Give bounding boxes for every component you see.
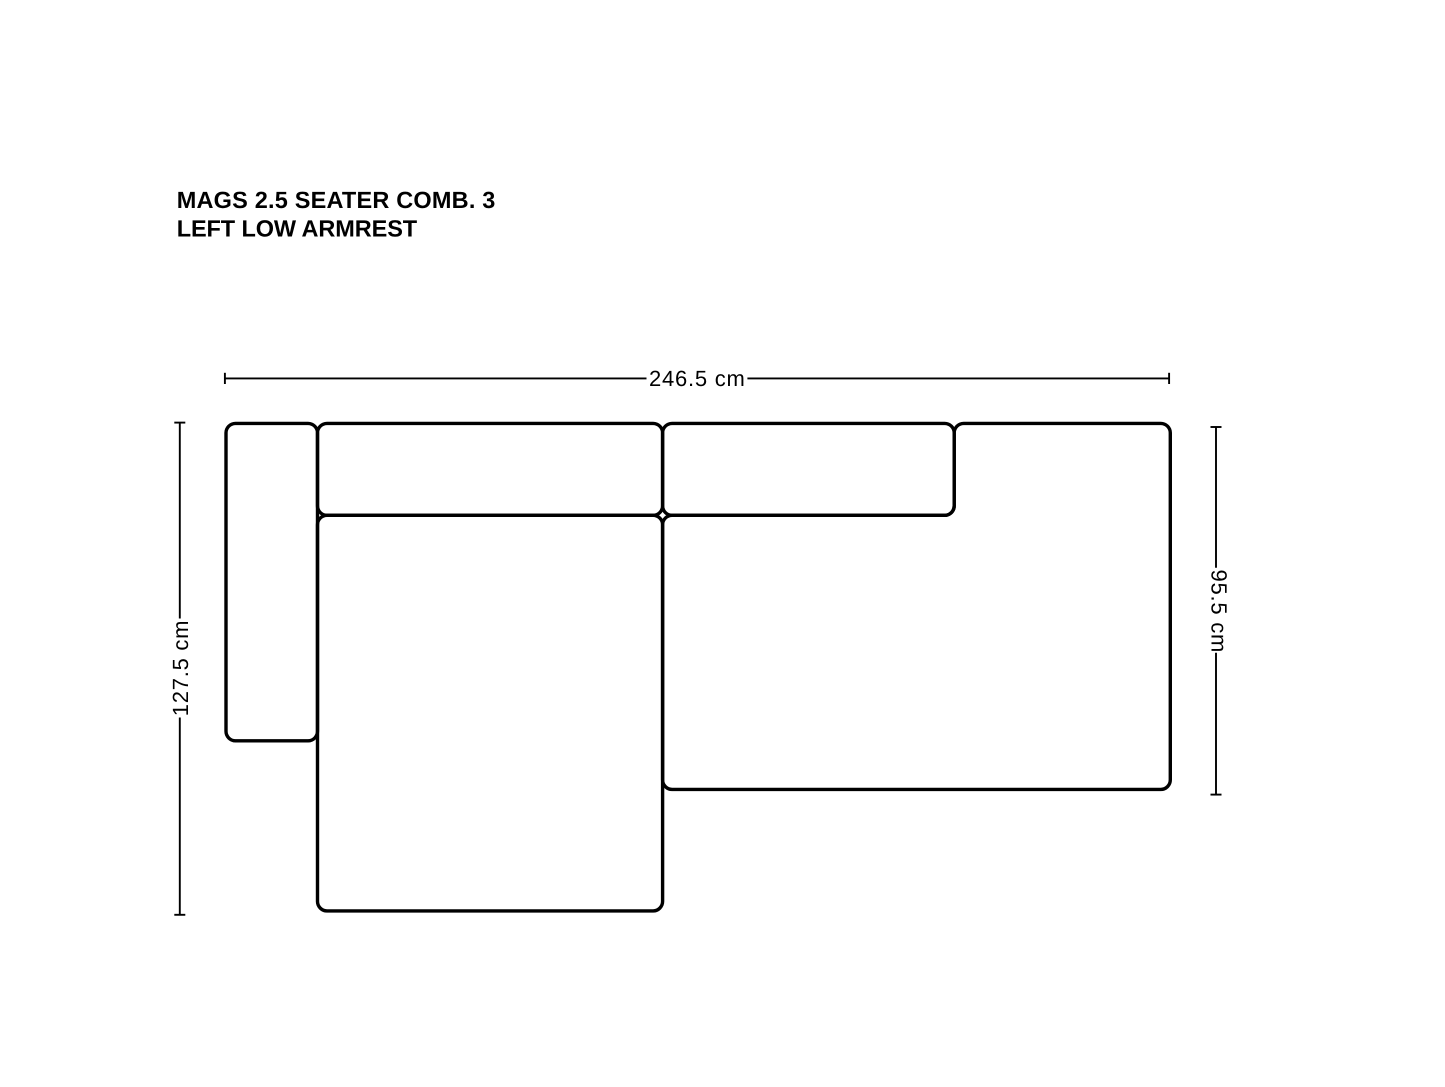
svg-text:95.5 cm: 95.5 cm: [1207, 570, 1232, 654]
svg-text:LEFT LOW ARMREST: LEFT LOW ARMREST: [177, 216, 418, 242]
svg-text:MAGS 2.5 SEATER COMB. 3: MAGS 2.5 SEATER COMB. 3: [177, 187, 496, 213]
svg-text:246.5 cm: 246.5 cm: [649, 366, 746, 391]
svg-text:127.5 cm: 127.5 cm: [168, 620, 193, 717]
